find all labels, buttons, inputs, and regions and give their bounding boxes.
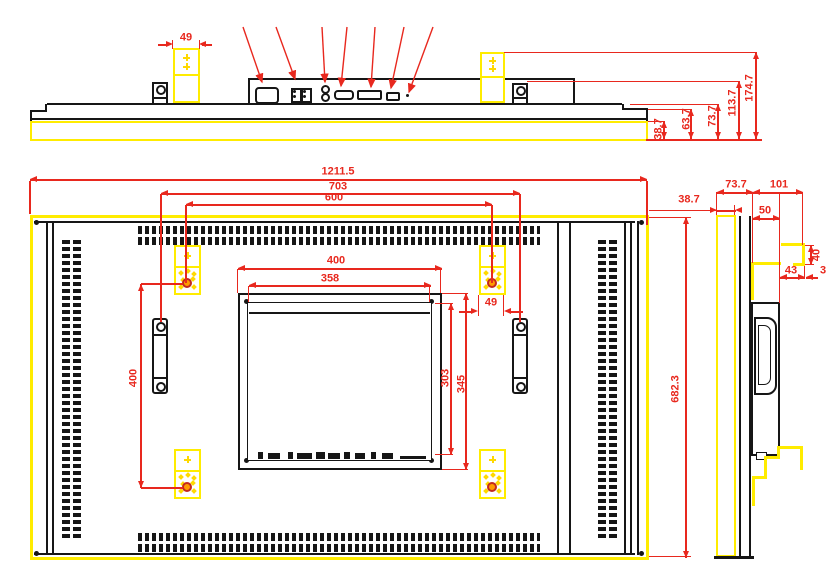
vent-column-right xyxy=(598,240,606,540)
hook-step xyxy=(751,262,754,300)
dim-ext xyxy=(734,205,735,215)
vent-row-bottom xyxy=(138,533,540,541)
panel-bend xyxy=(569,221,571,554)
dim-arrow xyxy=(138,284,144,291)
dim-ext xyxy=(442,469,468,470)
rear-bottom-edge xyxy=(34,553,635,555)
dim-top-h3: 73.7 xyxy=(708,105,719,126)
io-connector xyxy=(268,453,280,459)
dim-side-body: 73.7 xyxy=(725,180,746,191)
vent-column-left xyxy=(62,240,70,540)
dim-ext xyxy=(804,266,805,279)
bracket-mark xyxy=(489,65,496,72)
dim-ext xyxy=(237,269,238,293)
bracket-speckle xyxy=(191,488,197,494)
dim-ext xyxy=(141,283,183,285)
side-mount-bump-inner xyxy=(758,325,771,385)
vent-column-left xyxy=(73,240,81,540)
dim-line xyxy=(249,285,431,287)
dim-arrow xyxy=(753,215,760,221)
drawing-canvas: 49 38.7 63.7 73.7 113.7 174.7 xyxy=(0,0,835,572)
panel-bend xyxy=(624,221,626,554)
dim-arrow xyxy=(806,274,813,280)
dim-ext xyxy=(29,181,31,214)
io-bar xyxy=(400,456,426,459)
dim-line xyxy=(685,217,687,558)
dim-ext xyxy=(435,454,453,455)
dim-line xyxy=(238,268,442,270)
vesa-hole xyxy=(182,482,192,492)
handle-line xyxy=(154,334,166,336)
dim-arrow xyxy=(715,132,721,139)
handle-lug-right xyxy=(512,83,528,105)
hook-step xyxy=(753,262,781,265)
lug-line xyxy=(154,97,166,99)
leader-audio xyxy=(322,27,325,82)
bracket-mark xyxy=(489,456,496,463)
dim-arrow xyxy=(736,81,742,88)
dim-side-back: 101 xyxy=(770,180,788,191)
dim-line xyxy=(140,284,142,488)
bezel-line xyxy=(249,312,430,314)
dim-ext xyxy=(429,286,430,302)
dim-ext xyxy=(646,181,648,225)
side-body-line xyxy=(739,216,741,559)
dim-side-front: 38.7 xyxy=(678,195,699,206)
dim-ext xyxy=(160,194,162,322)
bracket-mark xyxy=(489,57,496,64)
rear-right-edge xyxy=(637,221,639,555)
corner-screw xyxy=(34,220,39,225)
dim-ext xyxy=(478,295,479,316)
bracket-speckle xyxy=(483,270,489,276)
dim-arrow xyxy=(249,282,256,288)
dim-rear-height: 682.3 xyxy=(671,375,682,403)
bracket-divider xyxy=(175,74,198,76)
dim-ext xyxy=(805,245,814,246)
bracket-mark xyxy=(183,54,190,61)
corner-screw xyxy=(34,551,39,556)
io-connector xyxy=(297,453,312,459)
dim-line xyxy=(450,303,452,455)
dim-hook-thickness: 3 xyxy=(820,266,826,277)
dim-side-box: 50 xyxy=(759,206,771,217)
dim-arrow xyxy=(736,132,742,139)
corner-screw xyxy=(639,220,644,225)
dim-ext xyxy=(519,194,521,322)
dim-rear-width: 1211.5 xyxy=(321,167,354,178)
io-connector xyxy=(355,453,365,459)
dim-ext xyxy=(442,293,468,294)
bracket-speckle xyxy=(178,270,184,276)
bracket-speckle xyxy=(191,284,197,290)
vent-row-bottom xyxy=(138,544,540,552)
dim-arrow xyxy=(780,274,787,280)
vesa-bracket-bottom-left xyxy=(174,449,201,499)
dim-line xyxy=(511,311,523,313)
dim-ext xyxy=(185,205,187,283)
dim-top-h1: 38.7 xyxy=(654,118,665,139)
panel-bend xyxy=(557,221,559,554)
bracket-mark xyxy=(183,63,190,70)
bracket-divider xyxy=(482,76,503,78)
dim-ext xyxy=(503,295,504,316)
vent-column-right xyxy=(609,240,617,540)
handle-hole xyxy=(156,382,166,392)
io-connector xyxy=(344,452,350,459)
panel-bend xyxy=(46,221,48,554)
leader-ir xyxy=(409,27,433,92)
dim-arrow xyxy=(717,189,724,195)
vesa-hole xyxy=(182,278,192,288)
handle-line xyxy=(514,334,526,336)
dim-line xyxy=(465,293,467,470)
bracket-speckle xyxy=(185,472,191,478)
rear-top-edge xyxy=(34,221,635,223)
io-connector xyxy=(316,452,325,459)
dim-ext xyxy=(248,286,249,302)
dim-vesa-height: 400 xyxy=(129,369,140,387)
vent-row-top xyxy=(138,237,540,245)
handle-line xyxy=(514,377,526,379)
dim-ext xyxy=(527,81,740,82)
handle-hole xyxy=(516,382,526,392)
vesa-hole xyxy=(487,482,497,492)
dim-arrow xyxy=(30,176,37,182)
dim-top-h2: 63.7 xyxy=(682,108,693,129)
io-connector xyxy=(328,453,340,459)
vesa-bracket-top-left xyxy=(174,245,201,295)
dim-ext xyxy=(440,269,441,293)
dim-bracket-width: 49 xyxy=(485,298,497,309)
wall-bracket-top-right xyxy=(480,52,505,103)
leader-dvi xyxy=(371,27,375,87)
bracket-speckle xyxy=(496,284,502,290)
hook-bottom xyxy=(800,446,803,470)
handle-lug-left xyxy=(152,82,168,105)
corner-screw xyxy=(639,551,644,556)
hook-bottom xyxy=(764,456,767,478)
vent-row-top xyxy=(138,226,540,234)
io-connector xyxy=(288,452,293,459)
side-bottom xyxy=(714,556,754,559)
io-connector xyxy=(258,452,263,459)
handle-left xyxy=(152,318,168,394)
handle-right xyxy=(512,318,528,394)
dim-top-h5: 174.7 xyxy=(745,74,756,102)
bracket-speckle xyxy=(490,472,496,478)
lug-line xyxy=(514,97,526,99)
bracket-speckle xyxy=(483,474,489,480)
dim-ext xyxy=(802,193,803,245)
side-front-glass xyxy=(716,215,736,557)
dim-arrow xyxy=(186,201,193,207)
dim-ext xyxy=(172,40,173,49)
vesa-bracket-top-right xyxy=(479,245,506,295)
dim-ext xyxy=(435,303,453,304)
dim-arrow xyxy=(688,132,694,139)
dim-ext xyxy=(649,556,691,557)
leader-hdmi xyxy=(391,27,404,88)
hook-bottom xyxy=(752,476,755,506)
panel-bend xyxy=(630,221,632,554)
dim-arrow xyxy=(161,190,168,196)
dim-top-bracket-width: 49 xyxy=(180,33,192,44)
dim-ext xyxy=(504,52,757,53)
panel-bend xyxy=(52,221,54,554)
bracket-speckle xyxy=(496,488,502,494)
handle-line xyxy=(154,377,166,379)
dim-panel-width: 358 xyxy=(321,274,339,285)
io-connector xyxy=(382,453,393,459)
dim-arrow xyxy=(238,265,245,271)
dim-arrow xyxy=(471,308,478,314)
leader-power xyxy=(243,27,262,82)
vesa-bracket-bottom-right xyxy=(479,449,506,499)
dim-arrow xyxy=(753,132,759,139)
dim-vesa-width: 600 xyxy=(325,193,343,204)
bracket-mark xyxy=(184,456,191,463)
dim-arrow xyxy=(504,308,511,314)
leader-terminals xyxy=(276,27,295,79)
lug-hole xyxy=(516,86,526,96)
io-connector xyxy=(371,452,376,459)
bracket-speckle xyxy=(178,474,184,480)
dim-ext xyxy=(716,192,717,215)
dim-arrow xyxy=(753,52,759,59)
handle-hole xyxy=(516,322,526,332)
dim-line xyxy=(649,210,717,211)
dim-line xyxy=(186,204,492,206)
dim-ext xyxy=(141,487,183,489)
lug-hole xyxy=(156,85,166,95)
dim-ext xyxy=(649,217,691,218)
wall-bracket-top-left xyxy=(173,48,200,103)
dim-ext xyxy=(491,205,493,283)
dim-ext xyxy=(805,264,814,265)
dim-mount-width: 400 xyxy=(327,256,345,267)
leader-vga xyxy=(341,27,347,86)
dim-ext xyxy=(779,193,780,303)
dim-ext xyxy=(752,193,753,263)
dim-arrow xyxy=(735,207,742,213)
dim-ext xyxy=(199,40,200,49)
inner-monitor-bezel xyxy=(247,302,432,461)
handle-hole xyxy=(156,322,166,332)
dim-top-h4: 113.7 xyxy=(728,90,739,117)
dim-arrow xyxy=(753,189,760,195)
